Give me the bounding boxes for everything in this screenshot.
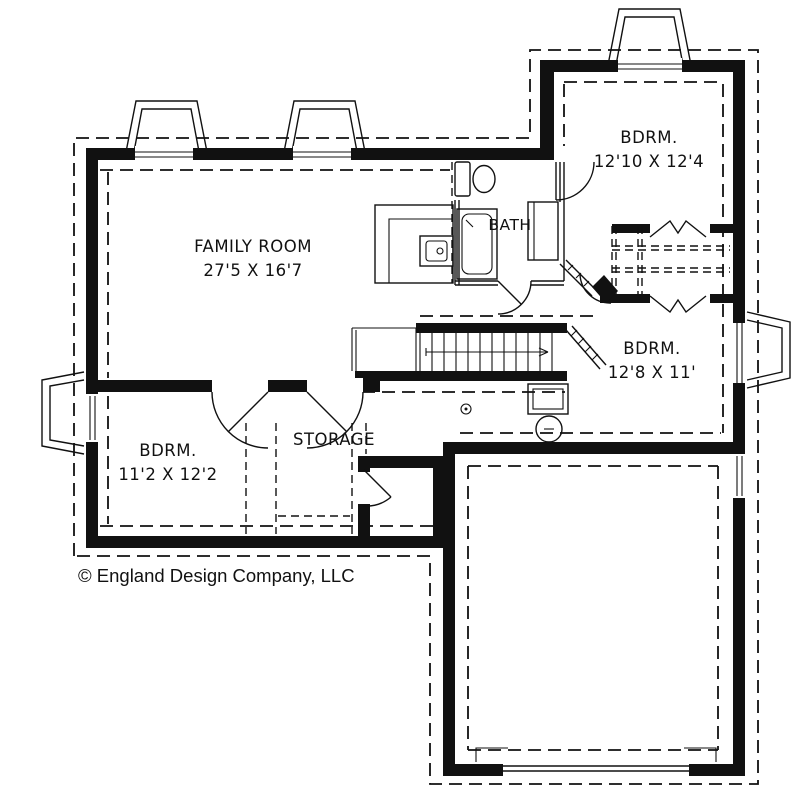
window-family-1 [135, 146, 193, 162]
window-garage-right [731, 454, 747, 498]
door-mechanical-room [356, 470, 391, 506]
room-dims-bedroom-bottom-left: 11'2 X 12'2 [118, 465, 217, 484]
bifold-closet-top [650, 221, 706, 237]
room-label-storage: STORAGE [293, 430, 375, 449]
window-well-left [42, 372, 84, 454]
basement-floor-plan: FAMILY ROOM 27'5 X 16'7 BDRM. 12'10 X 12… [0, 0, 800, 788]
room-dims-bedroom-right: 12'8 X 11' [608, 363, 696, 382]
room-label-bath: BATH [488, 216, 531, 234]
wet-bar-counter [375, 205, 453, 283]
window-bedroom-right [731, 323, 747, 383]
closet-dashes [612, 226, 730, 294]
floor-drain [461, 404, 471, 414]
stairs [352, 328, 552, 371]
floor-plan-svg: FAMILY ROOM 27'5 X 16'7 BDRM. 12'10 X 12… [0, 0, 800, 788]
toilet [455, 162, 495, 196]
room-label-bedroom-bottom-left: BDRM. [139, 441, 196, 460]
angled-hall-walls [560, 260, 606, 369]
bifold-closet-bottom [650, 296, 706, 312]
door-bedroom-top-right [556, 146, 594, 200]
room-dims-bedroom-top-right: 12'10 X 12'4 [594, 152, 704, 171]
room-dims-family: 27'5 X 16'7 [203, 261, 302, 280]
door-bath [498, 277, 531, 314]
room-label-family: FAMILY ROOM [194, 237, 312, 256]
room-label-bedroom-top-right: BDRM. [620, 128, 677, 147]
window-well-right [747, 312, 790, 388]
window-bedroom-left [84, 394, 100, 442]
furnace [528, 384, 568, 414]
window-family-2 [293, 146, 351, 162]
window-well-bedroom-top [608, 9, 691, 65]
copyright-text: © England Design Company, LLC [78, 565, 355, 586]
water-heater [536, 416, 562, 442]
garage-door [476, 748, 716, 778]
inner-footing-dashes [100, 82, 723, 750]
windows [84, 58, 747, 498]
vanity [528, 202, 558, 260]
room-label-bedroom-right: BDRM. [623, 339, 680, 358]
window-bedroom-top [618, 58, 682, 74]
door-bedroom-bottom-left [212, 378, 268, 448]
